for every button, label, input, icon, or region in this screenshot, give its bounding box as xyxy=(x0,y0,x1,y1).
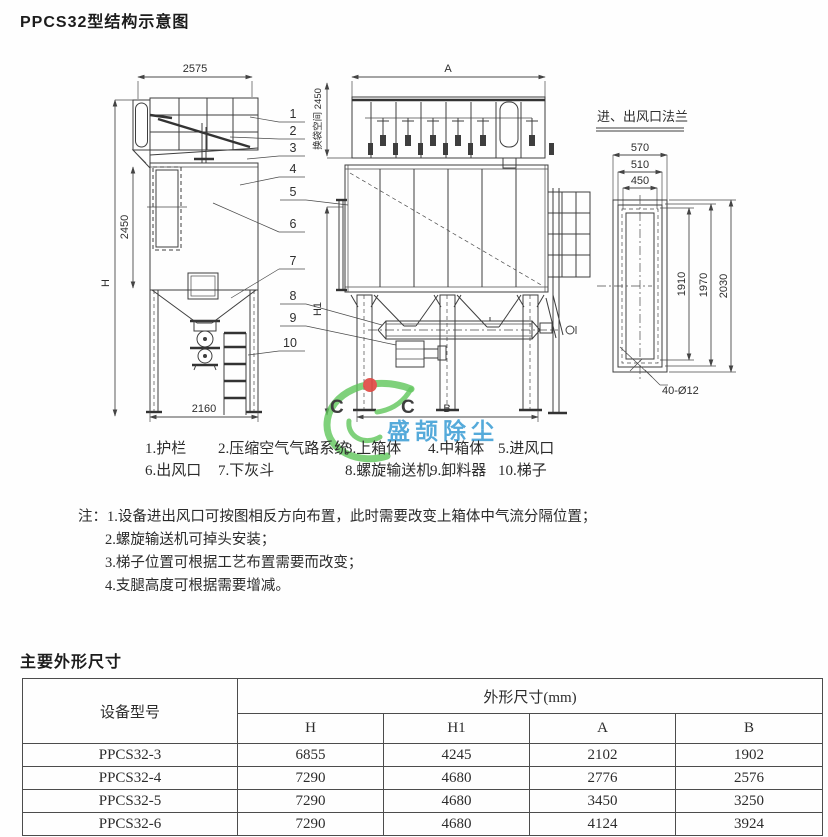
table-row: PPCS32-4 7290 4680 2776 2576 xyxy=(23,767,823,790)
cell-model: PPCS32-5 xyxy=(23,790,238,813)
cell-B: 2576 xyxy=(676,767,823,790)
group-header-dims: 外形尺寸(mm) xyxy=(238,679,823,714)
legend-item-4: 4.中箱体 xyxy=(428,437,484,458)
dim-1970: 1970 xyxy=(698,273,710,297)
callout-9: 9 xyxy=(290,311,297,325)
callout-1: 1 xyxy=(290,107,297,121)
dim-570: 570 xyxy=(631,142,649,154)
cell-B: 3924 xyxy=(676,813,823,836)
note-4: 4.支腿高度可根据需要增减。 xyxy=(105,575,596,598)
legend-item-2: 2.压缩空气气路系统 xyxy=(218,437,349,458)
cell-A: 2102 xyxy=(530,744,676,767)
page-title: PPCS32型结构示意图 xyxy=(20,8,189,32)
notes: 注：1.设备进出风口可按图相反方向布置，此时需要改变上箱体中气流分隔位置； 2.… xyxy=(78,506,596,598)
side-view: 2575 xyxy=(100,63,262,422)
callout-6: 6 xyxy=(290,217,297,231)
cell-model: PPCS32-3 xyxy=(23,744,238,767)
cell-H1: 4680 xyxy=(384,767,530,790)
col-header-B: B xyxy=(676,714,823,744)
legend-item-6: 6.出风口 xyxy=(145,459,201,480)
dim-2450: 2450 xyxy=(119,215,131,239)
dim-1910: 1910 xyxy=(676,272,688,296)
note-1: 1.设备进出风口可按图相反方向布置，此时需要改变上箱体中气流分隔位置； xyxy=(107,509,596,525)
cell-A: 4124 xyxy=(530,813,676,836)
dim-A: A xyxy=(444,63,452,75)
legend-item-7: 7.下灰斗 xyxy=(218,459,274,480)
air-tank xyxy=(500,102,518,147)
callout-7: 7 xyxy=(290,254,297,268)
callout-10: 10 xyxy=(283,336,297,350)
cell-B: 3250 xyxy=(676,790,823,813)
cell-B: 1902 xyxy=(676,744,823,767)
dim-2030: 2030 xyxy=(718,274,730,298)
col-header-A: A xyxy=(530,714,676,744)
document-page: PPCS32型结构示意图 2575 xyxy=(0,0,828,837)
cell-H: 7290 xyxy=(238,813,384,836)
dim-2160: 2160 xyxy=(192,403,216,415)
col-header-H1: H1 xyxy=(384,714,530,744)
front-view: A 换袋空 xyxy=(312,63,590,422)
structure-diagram: 2575 xyxy=(0,55,828,433)
col-header-model: 设备型号 xyxy=(23,679,238,744)
cell-A: 3450 xyxy=(530,790,676,813)
dim-H1: H1 xyxy=(312,302,324,316)
flange-title: 进、出风口法兰 xyxy=(597,109,688,124)
dimensions-table: 设备型号 外形尺寸(mm) H H1 A B PPCS32-3 6855 424… xyxy=(22,678,823,836)
dim-450: 450 xyxy=(631,175,649,187)
cell-H1: 4680 xyxy=(384,790,530,813)
callout-2: 2 xyxy=(290,124,297,138)
table-row: PPCS32-3 6855 4245 2102 1902 xyxy=(23,744,823,767)
note-3: 3.梯子位置可根据工艺布置需要而改变； xyxy=(105,552,596,575)
cell-A: 2776 xyxy=(530,767,676,790)
cell-model: PPCS32-6 xyxy=(23,813,238,836)
cell-H1: 4680 xyxy=(384,813,530,836)
cell-H1: 4245 xyxy=(384,744,530,767)
dim-2575: 2575 xyxy=(183,63,207,75)
legend-item-1: 1.护栏 xyxy=(145,437,186,458)
callout-4: 4 xyxy=(290,162,297,176)
legend-item-9: 9.卸料器 xyxy=(430,459,486,480)
bolt-note: 40-Ø12 xyxy=(662,385,699,397)
callout-8: 8 xyxy=(290,289,297,303)
cell-H: 7290 xyxy=(238,790,384,813)
legend-item-3: 3.上箱体 xyxy=(345,437,401,458)
legend-item-10: 10.梯子 xyxy=(498,459,547,480)
col-header-H: H xyxy=(238,714,384,744)
table-row: PPCS32-5 7290 4680 3450 3250 xyxy=(23,790,823,813)
dimensions-section-title: 主要外形尺寸 xyxy=(20,648,122,672)
notes-prefix: 注： xyxy=(78,509,107,525)
note-2: 2.螺旋输送机可掉头安装； xyxy=(105,529,596,552)
dim-bag-space: 换袋空间 2450 xyxy=(312,88,324,150)
table-row: PPCS32-6 7290 4680 4124 3924 xyxy=(23,813,823,836)
cell-model: PPCS32-4 xyxy=(23,767,238,790)
callout-3: 3 xyxy=(290,141,297,155)
dim-H: H xyxy=(100,279,112,287)
callout-5: 5 xyxy=(290,185,297,199)
legend-item-5: 5.进风口 xyxy=(498,437,554,458)
cell-H: 6855 xyxy=(238,744,384,767)
dim-B: B xyxy=(443,403,450,415)
flange-view: 进、出风口法兰 570 510 450 xyxy=(596,109,736,397)
dim-510: 510 xyxy=(631,159,649,171)
cell-H: 7290 xyxy=(238,767,384,790)
legend-item-8: 8.螺旋输送机 xyxy=(345,459,431,480)
